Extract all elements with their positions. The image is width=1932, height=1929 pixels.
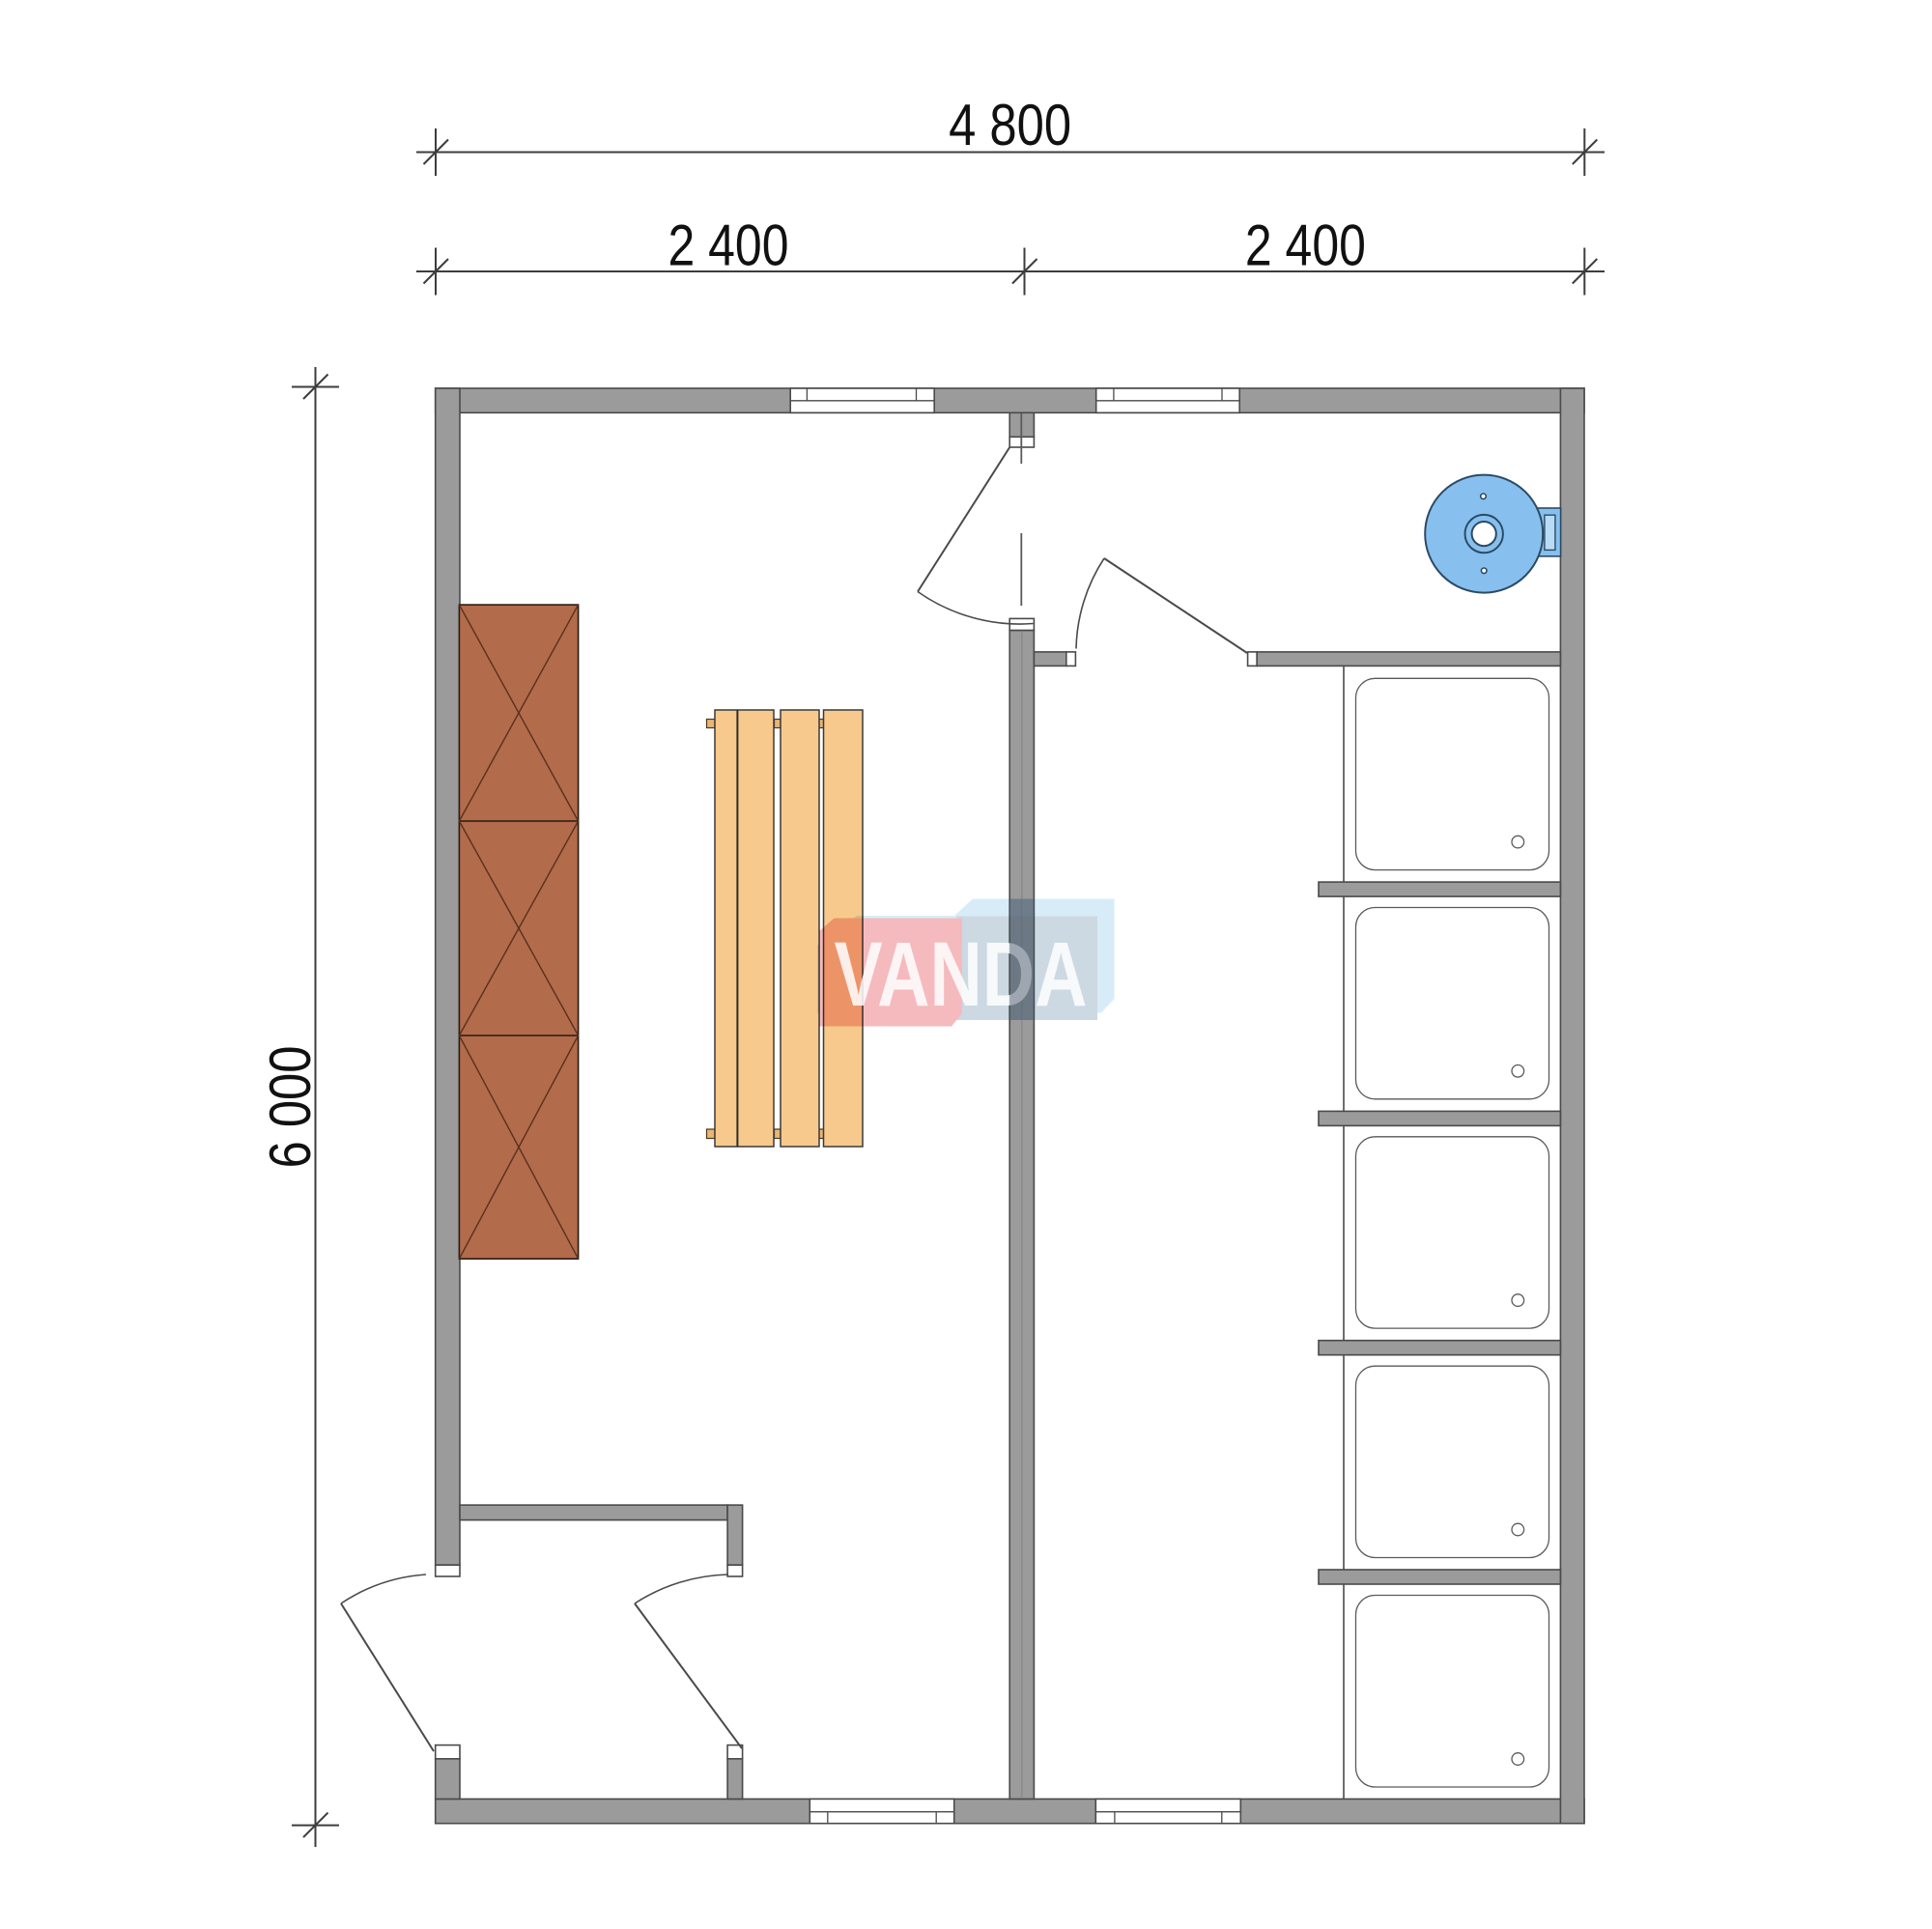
- svg-text:2 400: 2 400: [668, 213, 789, 278]
- svg-text:6 000: 6 000: [258, 1046, 323, 1169]
- svg-text:2 400: 2 400: [1245, 213, 1366, 278]
- svg-text:4 800: 4 800: [949, 93, 1071, 157]
- svg-text:VANDA: VANDA: [835, 923, 1088, 1026]
